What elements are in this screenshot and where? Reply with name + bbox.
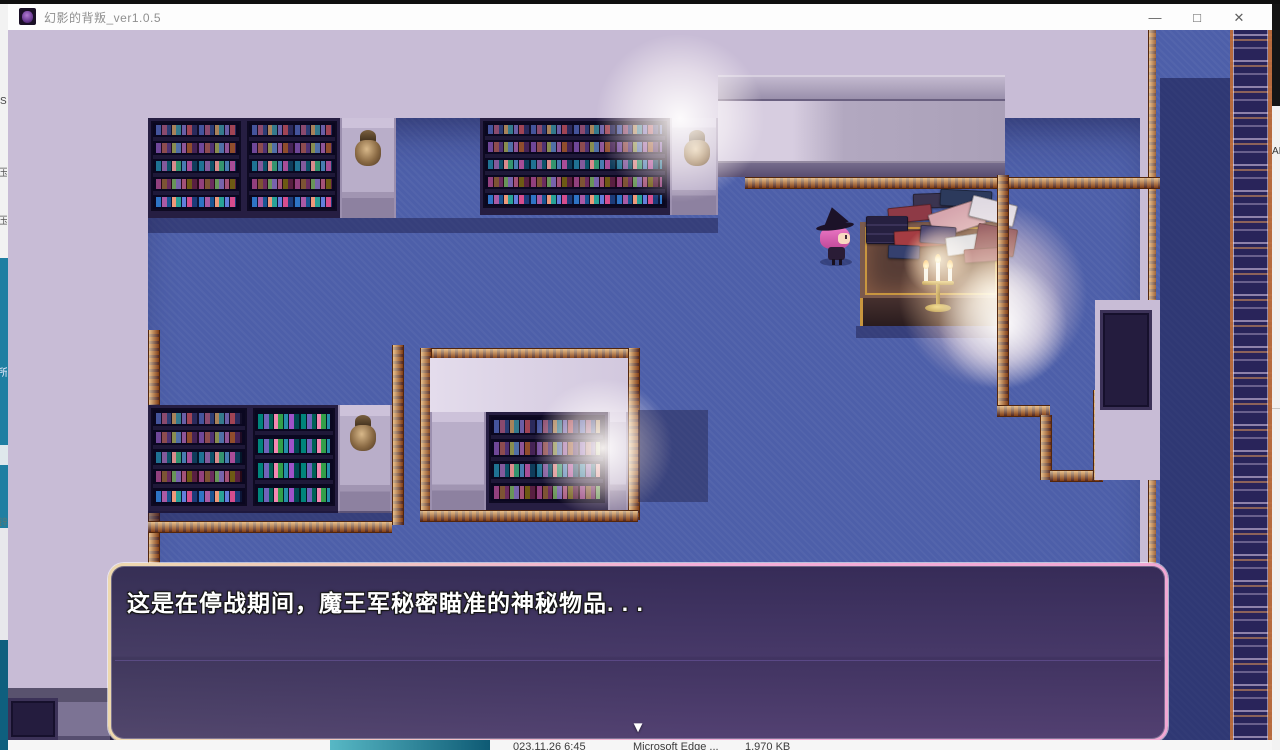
island-cast-shadow — [638, 410, 708, 502]
close-button[interactable]: ✕ — [1218, 4, 1260, 30]
left-sliver-bottom — [0, 640, 8, 750]
bookshelf — [250, 405, 338, 513]
left-sliver-list-selection — [0, 258, 8, 532]
app-icon — [19, 8, 36, 25]
right-sliver-text-fragment: AI — [1272, 146, 1280, 157]
shelf-shadow — [148, 218, 718, 233]
explorer-file-size: 1,970 KB — [745, 741, 790, 750]
island-pillar — [430, 412, 486, 510]
dark-cabinet — [8, 698, 58, 740]
continue-indicator-icon: ▼ — [631, 719, 646, 736]
shelf-shadow — [148, 511, 392, 521]
dialogue-divider-line — [115, 660, 1161, 661]
game-viewport[interactable]: 这是在停战期间，魔王军秘密瞄准的神秘物品. . . ▼ — [8, 30, 1272, 740]
left-sliver-text-fragment: 压 — [0, 212, 7, 227]
close-icon: ✕ — [1234, 11, 1245, 24]
witch-leg — [832, 259, 835, 265]
carpet-border — [392, 345, 404, 525]
carpet-border — [148, 521, 392, 533]
candelabra-base — [925, 304, 951, 312]
candle — [936, 262, 940, 281]
candle — [948, 268, 952, 281]
minimize-icon: — — [1149, 11, 1162, 24]
right-sliver-divider — [1272, 408, 1280, 409]
urn-jar — [684, 130, 710, 166]
background-window-right-sliver: AI — [1272, 0, 1280, 750]
dialogue-box[interactable]: 这是在停战期间，魔王军秘密瞄准的神秘物品. . . ▼ — [108, 563, 1168, 740]
ornate-wall-border — [1230, 30, 1272, 740]
explorer-date-modified: 023.11.26 6:45 — [513, 741, 586, 750]
raised-wall-cornice — [718, 75, 1005, 101]
raised-wall-face — [718, 101, 1005, 161]
dialogue-text: 这是在停战期间，魔王军秘密瞄准的神秘物品. . . — [127, 584, 644, 618]
bookshelf — [480, 118, 670, 215]
left-sliver-text-fragment: 所 — [0, 364, 7, 379]
player-character-witch — [812, 210, 860, 268]
candle-flame — [935, 254, 941, 263]
left-sliver-text-fragment: 锌 — [0, 514, 7, 529]
urn-jar — [350, 415, 376, 451]
island-top-surface — [430, 358, 628, 412]
maximize-icon: □ — [1193, 11, 1201, 24]
left-sliver-text-fragment: S — [0, 96, 8, 107]
bookshelf — [244, 118, 340, 218]
left-sliver-light-band — [0, 445, 8, 465]
background-window-left-sliver: S 压 压 所 锌 — [0, 4, 8, 750]
right-sliver-dark-top — [1272, 0, 1280, 106]
candle — [924, 268, 928, 281]
maximize-button[interactable]: □ — [1176, 4, 1218, 30]
glowing-lantern — [568, 420, 594, 456]
background-explorer-row: 023.11.26 6:45 Microsoft Edge ... 1,970 … — [8, 740, 1272, 750]
window-title: 幻影的背叛_ver1.0.5 — [44, 9, 161, 26]
carpet-border — [745, 177, 1160, 189]
bookshelf — [148, 405, 250, 513]
candelabra-stem — [936, 284, 940, 306]
game-window-titlebar[interactable]: 幻影的背叛_ver1.0.5 — □ ✕ — [8, 4, 1272, 30]
left-sliver-text-fragment: 压 — [0, 164, 7, 179]
dialogue-box-inner: 这是在停战期间，魔王军秘密瞄准的神秘物品. . . ▼ — [111, 566, 1165, 739]
dark-cabinet — [1100, 310, 1152, 410]
left-sliver-pane — [0, 528, 8, 640]
witch-body — [828, 247, 845, 260]
explorer-selected-row-highlight — [330, 740, 490, 750]
candle-flame — [923, 260, 929, 269]
carpet-border — [420, 510, 638, 522]
witch-face — [838, 233, 850, 244]
minimize-button[interactable]: — — [1134, 4, 1176, 30]
raised-wall-ledge — [718, 161, 1005, 177]
window-controls: — □ ✕ — [1134, 4, 1260, 30]
corridor-shadow — [1160, 78, 1230, 740]
carpet-border — [997, 175, 1009, 415]
witch-eye — [845, 235, 847, 239]
island-pillar — [608, 412, 628, 510]
explorer-file-type: Microsoft Edge ... — [633, 741, 719, 750]
candle-flame — [947, 260, 953, 269]
witch-leg — [839, 259, 842, 265]
candelabra — [916, 254, 960, 312]
table-shadow — [856, 326, 1006, 338]
urn-jar — [355, 130, 381, 166]
bookshelf — [148, 118, 244, 218]
